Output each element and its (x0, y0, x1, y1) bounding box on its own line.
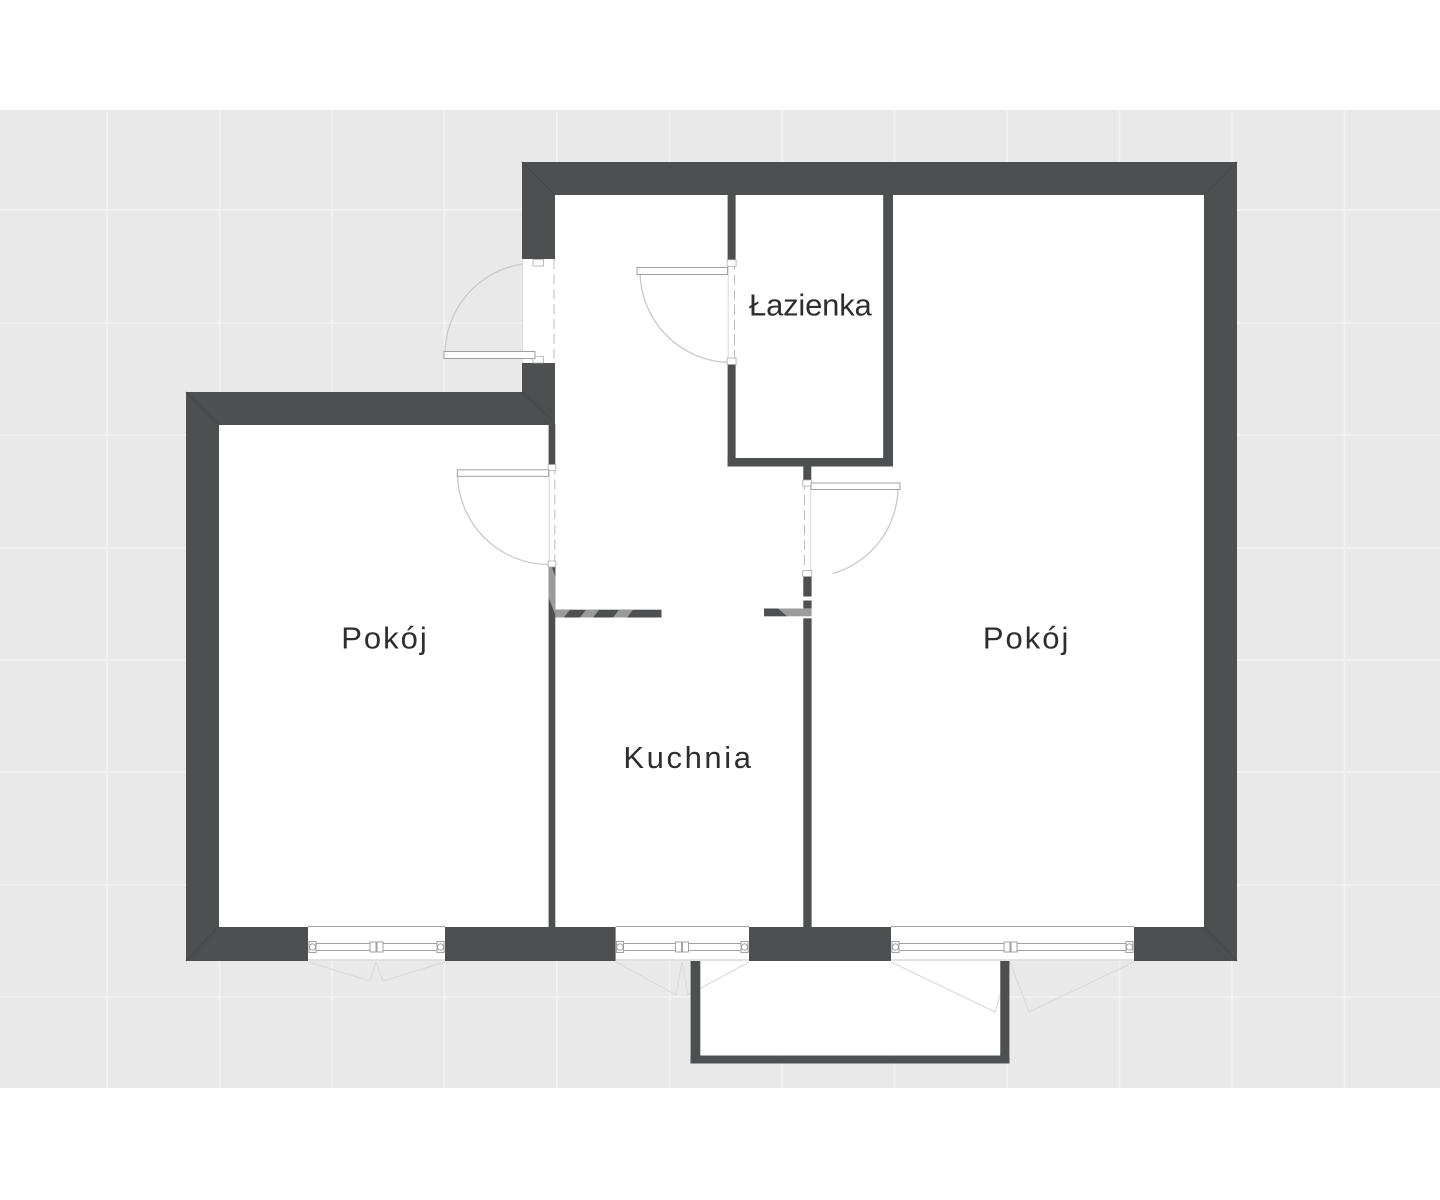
svg-text:Pokój: Pokój (341, 621, 429, 656)
svg-text:Pokój: Pokój (983, 621, 1071, 656)
svg-text:Łazienka: Łazienka (749, 287, 872, 322)
svg-text:Kuchnia: Kuchnia (623, 740, 753, 775)
